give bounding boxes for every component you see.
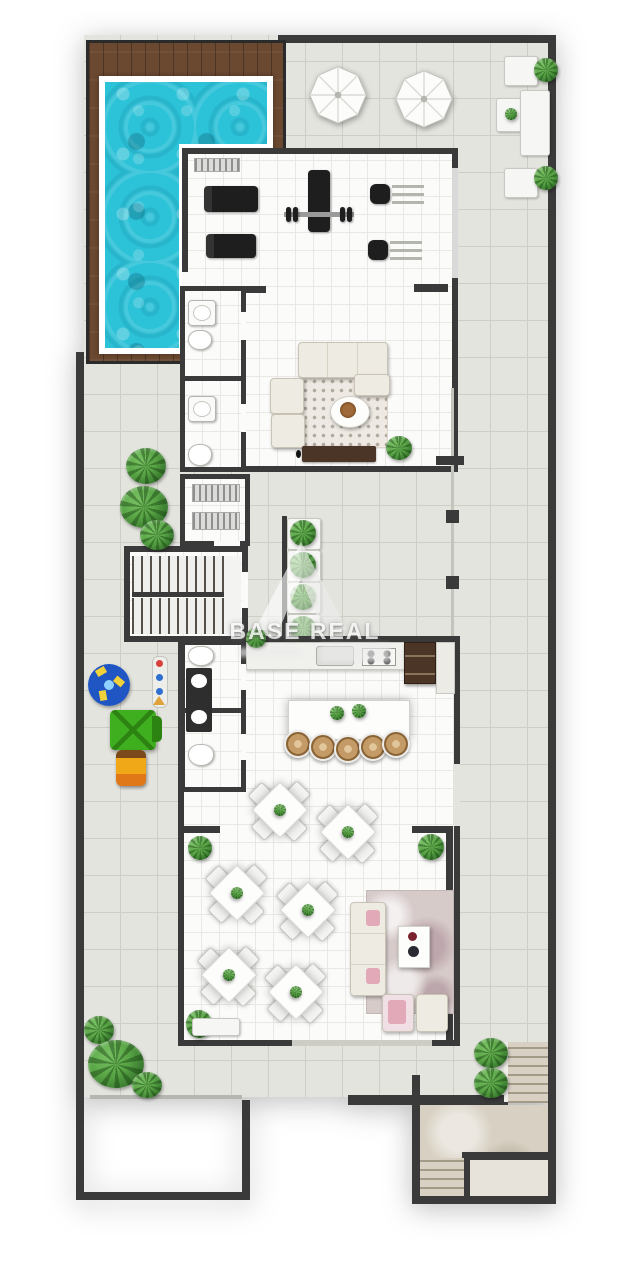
weight-rack <box>194 158 240 172</box>
exercise-bike-seat <box>368 240 388 260</box>
patio-armchair <box>504 168 538 198</box>
stair-flight-upper <box>132 556 224 592</box>
watermark-subtext <box>238 648 300 657</box>
garden-plant <box>132 1072 162 1098</box>
centerpiece-plant <box>340 824 357 841</box>
outer-wall-right <box>548 35 556 1103</box>
centerpiece-plant <box>288 984 305 1001</box>
toilet <box>188 330 212 350</box>
table-decor <box>408 932 417 941</box>
entry-lower-landing <box>470 1160 548 1196</box>
toy-car <box>116 750 146 786</box>
barbell-plate <box>347 207 352 222</box>
patio-armchair <box>504 56 538 86</box>
sauna-bench <box>192 484 240 502</box>
playhouse-toy <box>110 710 156 750</box>
patio-table-plant <box>505 108 517 120</box>
party-plant <box>188 836 212 860</box>
centerpiece-plant <box>272 802 289 819</box>
lounge-armchair <box>416 994 448 1032</box>
bathroom-sink <box>188 396 216 422</box>
slab-edge <box>90 1095 242 1099</box>
bathroom-door-opening <box>241 664 246 690</box>
party-wall-stub-left <box>184 826 220 833</box>
bathroom-door-opening <box>241 312 246 340</box>
bench-press-bench <box>308 170 330 232</box>
barbell-plate <box>293 207 298 222</box>
tv-console <box>302 446 376 462</box>
umbrella-icon <box>394 69 454 129</box>
gym-window-right <box>452 168 458 278</box>
vanity-sink <box>191 674 207 688</box>
party-opening-right <box>453 764 460 826</box>
carousel-seat <box>99 690 108 701</box>
party-glass-doors <box>292 1040 432 1046</box>
treadmill <box>204 186 258 212</box>
watermark-logo <box>255 542 347 630</box>
toilet <box>188 444 212 466</box>
gym-living-divider-stub-right <box>414 284 448 292</box>
entry-wall-bottom <box>412 1196 556 1204</box>
bar-stool <box>334 735 362 763</box>
garden-plant <box>126 448 166 484</box>
treadmill <box>206 234 256 258</box>
entry-wall-mid <box>462 1152 556 1160</box>
outer-wall-bottom-left <box>76 1192 250 1200</box>
kitchen-counter-side <box>436 642 455 694</box>
island-plant <box>352 704 366 718</box>
vanity-sink <box>191 710 207 724</box>
living-sofa <box>298 342 388 378</box>
centerpiece-plant <box>229 885 246 902</box>
watermark-text: BASE REAL <box>210 618 400 645</box>
party-wall-stub-right <box>412 826 453 833</box>
lounge-pillow <box>366 968 380 984</box>
seesaw-seat <box>156 660 163 667</box>
seesaw-seat <box>156 688 163 695</box>
patio-sofa <box>520 90 550 156</box>
outer-wall-top <box>278 35 556 43</box>
party-plant <box>418 834 444 860</box>
wall-stub <box>436 456 464 465</box>
entry-stair-flight-upper <box>508 1042 548 1103</box>
bar-stool <box>309 733 337 761</box>
bathroom-door-opening <box>241 404 246 432</box>
patio-plant <box>534 166 558 190</box>
stair-rail <box>132 592 224 597</box>
living-plant <box>386 436 412 460</box>
bathroom-divider <box>180 376 246 381</box>
exercise-bike-seat <box>370 184 390 204</box>
pool-water-top <box>105 82 267 144</box>
stair-plant <box>474 1068 508 1098</box>
exercise-bike-frame <box>390 240 422 260</box>
living-armchair <box>271 414 305 448</box>
floor-plan: BASE REAL <box>0 0 623 1280</box>
coffee-table-tray <box>340 402 356 418</box>
patio-plant <box>534 58 558 82</box>
playhouse-porch <box>152 716 162 742</box>
garden-plant <box>140 520 174 550</box>
centerpiece-plant <box>300 902 317 919</box>
refrigerator <box>404 642 436 684</box>
lounge-pillow <box>366 910 380 926</box>
entry-wall-right <box>548 1095 556 1204</box>
sauna-bench <box>192 512 240 530</box>
stairwell-door-opening <box>242 572 248 608</box>
glass-wall-post <box>446 576 459 589</box>
living-armchair <box>270 378 304 414</box>
toilet <box>188 744 214 766</box>
glass-wall-post <box>446 510 459 523</box>
armchair-cushion <box>388 1000 406 1024</box>
umbrella-icon <box>308 65 368 125</box>
living-chaise <box>354 374 390 396</box>
centerpiece-plant <box>221 967 238 984</box>
exercise-bike-frame <box>392 184 424 204</box>
entry-stair-flight-lower <box>420 1158 464 1198</box>
table-decor <box>408 946 419 957</box>
bench <box>192 1018 240 1036</box>
watermark-badge <box>320 644 390 662</box>
barbell-plate <box>340 207 345 222</box>
seesaw-seat <box>156 674 163 681</box>
bar-stool <box>382 730 410 758</box>
toilet <box>188 646 214 666</box>
void-wall-right <box>242 1100 250 1200</box>
island-plant <box>330 706 344 720</box>
entry-wall-left <box>412 1075 420 1200</box>
barbell-plate <box>286 207 291 222</box>
bar-stool <box>284 730 312 758</box>
bathroom-sink <box>188 300 216 326</box>
console-decor <box>296 450 301 458</box>
outer-wall-left <box>76 352 84 1200</box>
bathroom-door-opening <box>241 734 246 760</box>
stair-plant <box>474 1038 508 1068</box>
